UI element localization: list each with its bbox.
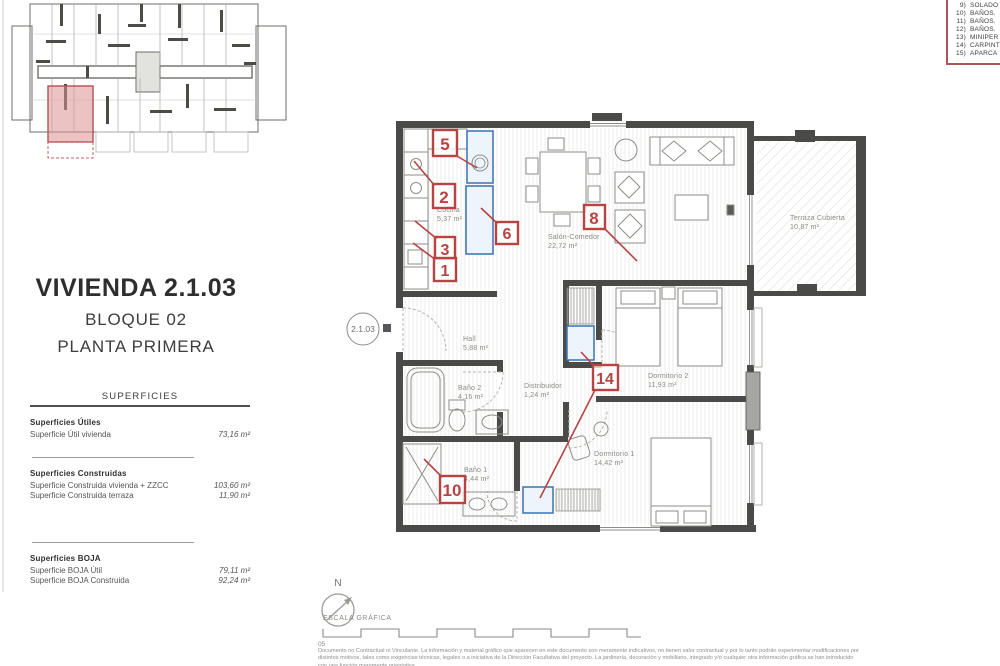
surface-label: Superficie BOJA Construida (30, 576, 129, 587)
surface-label: Superficie Construida vivienda + ZZCC (30, 481, 169, 492)
floor-subtitle: PLANTA PRIMERA (22, 337, 250, 357)
room-label-hall: Hall (463, 336, 476, 343)
finishes-legend: 9) SOLADO 10) BAÑOS. 11) BAÑOS. 12) BAÑO… (946, 0, 1000, 65)
surface-row: Superficie BOJA Construida 92,24 m² (30, 576, 250, 587)
room-label-dorm2: Dormitorio 2 (648, 373, 689, 380)
kitchen-unit-highlight-b (466, 186, 493, 254)
keyplan-highlighted-unit (48, 86, 93, 142)
room-area-hall: 5,88 m² (463, 345, 489, 352)
legend-item-label: BAÑOS. (970, 18, 996, 26)
legend-item-number: 12) (953, 26, 966, 34)
keyplan (12, 4, 286, 158)
plan-sheet: Cocina 5,37 m² Salón-Comedor 22,72 m² Ha… (0, 0, 1000, 666)
legend-item-label: BAÑOS. (970, 26, 996, 34)
unit-title: VIVIENDA 2.1.03 (22, 274, 250, 303)
surface-value: 103,60 m² (214, 481, 250, 492)
legend-item-number: 9) (953, 2, 966, 10)
legend-item: 14) CARPINT (953, 42, 1000, 50)
legend-item: 12) BAÑOS. (953, 26, 1000, 34)
surfaces-title: SUPERFICIES (30, 391, 250, 402)
surface-row: Superficie Construida vivienda + ZZCC 10… (30, 481, 250, 492)
legend-item-label: MINIPER (970, 34, 999, 42)
keyplan-balconies (96, 132, 248, 152)
legend-item-label: BAÑOS. (970, 10, 996, 18)
disclaimer-line: Documento no Contractual ni Vinculante. … (318, 648, 998, 655)
room-label-terraza: Terraza Cubierta (790, 215, 845, 222)
scale-label: ESCALA GRÁFICA (323, 613, 392, 622)
legend-item-number: 13) (953, 34, 966, 42)
legend-item-number: 14) (953, 42, 966, 50)
unit-ref-label: 2.1.03 (351, 324, 375, 334)
surface-label: Superficie BOJA Útil (30, 566, 102, 577)
room-label-salon: Salón-Comedor (548, 234, 600, 241)
room-area-bano1: 4,44 m² (464, 476, 490, 483)
surfaces-divider (32, 457, 194, 458)
unit-ref-bubble: 2.1.03 (347, 313, 391, 345)
legend-item-number: 11) (953, 18, 966, 26)
surfaces-group-boja: Superficies BOJA Superficie BOJA Útil 79… (30, 554, 250, 587)
legend-item: 9) SOLADO (953, 2, 1000, 10)
block-subtitle: BLOQUE 02 (22, 310, 250, 330)
window-highlight (523, 487, 553, 513)
room-area-cocina: 5,37 m² (437, 216, 463, 223)
svg-text:1: 1 (441, 263, 450, 280)
surfaces-table: SUPERFICIES Superficies Útiles Superfici… (22, 391, 250, 587)
legend-item: 13) MINIPER (953, 34, 1000, 42)
surface-row: Superficie BOJA Útil 79,11 m² (30, 566, 250, 577)
surface-value: 92,24 m² (218, 576, 250, 587)
svg-text:N: N (334, 578, 341, 589)
svg-text:14: 14 (596, 371, 614, 388)
surfaces-title-rule (30, 405, 250, 407)
keyplan-highlighted-terrace (48, 142, 93, 158)
room-area-distribuidor: 1,24 m² (524, 392, 550, 399)
room-area-salon: 22,72 m² (548, 243, 578, 250)
room-label-bano1: Baño 1 (464, 467, 487, 474)
legend-item-number: 10) (953, 10, 966, 18)
floor-plan: Cocina 5,37 m² Salón-Comedor 22,72 m² Ha… (347, 113, 866, 532)
legend-item-label: SOLADO (970, 2, 998, 10)
surface-label: Superficie Útil vivienda (30, 430, 111, 441)
room-area-dorm2: 11,93 m² (648, 382, 677, 389)
svg-text:3: 3 (441, 242, 450, 259)
surfaces-divider (32, 542, 194, 543)
svg-text:8: 8 (589, 209, 598, 228)
legend-item: 10) BAÑOS. (953, 10, 1000, 18)
surface-value: 11,90 m² (219, 491, 250, 502)
graphic-scale: ESCALA GRÁFICA 05 (318, 613, 641, 648)
room-label-bano2: Baño 2 (458, 385, 481, 392)
legal-disclaimer: Documento no Contractual ni Vinculante. … (318, 648, 998, 666)
svg-text:5: 5 (440, 135, 449, 154)
room-area-dorm1: 14,42 m² (594, 460, 624, 467)
room-label-dorm1: Dormitorio 1 (594, 451, 635, 458)
kitchen-unit-highlight-a (467, 131, 493, 183)
surface-row: Superficie Útil vivienda 73,16 m² (30, 430, 250, 441)
legend-item-label: APARCA (970, 50, 997, 58)
surfaces-group-heading: Superficies Construidas (30, 469, 250, 478)
svg-text:2: 2 (439, 188, 448, 207)
surfaces-group-heading: Superficies BOJA (30, 554, 250, 563)
svg-text:6: 6 (503, 226, 512, 243)
legend-item: 15) APARCA (953, 50, 1000, 58)
surfaces-group-construidas: Superficies Construidas Superficie Const… (30, 469, 250, 502)
surfaces-group-utiles: Superficies Útiles Superficie Útil vivie… (30, 418, 250, 441)
svg-text:10: 10 (443, 481, 462, 500)
disclaimer-line: distintos motivos, tales como exigencias… (318, 655, 998, 662)
room-area-bano2: 4,16 m² (458, 394, 484, 401)
room-label-distribuidor: Distribuidor (524, 383, 562, 390)
scale-origin: 05 (318, 641, 326, 648)
surface-value: 73,16 m² (218, 430, 250, 441)
surfaces-group-heading: Superficies Útiles (30, 418, 250, 427)
surface-label: Superficie Construida terraza (30, 491, 134, 502)
unit-info-panel: VIVIENDA 2.1.03 BLOQUE 02 PLANTA PRIMERA… (22, 274, 250, 587)
surface-value: 79,11 m² (219, 566, 250, 577)
legend-item-number: 15) (953, 50, 966, 58)
surface-row: Superficie Construida terraza 11,90 m² (30, 491, 250, 502)
room-area-terraza: 10,87 m² (790, 224, 820, 231)
legend-item-label: CARPINT (970, 42, 1000, 50)
wardrobe-highlight (567, 326, 594, 360)
legend-item: 11) BAÑOS. (953, 18, 1000, 26)
